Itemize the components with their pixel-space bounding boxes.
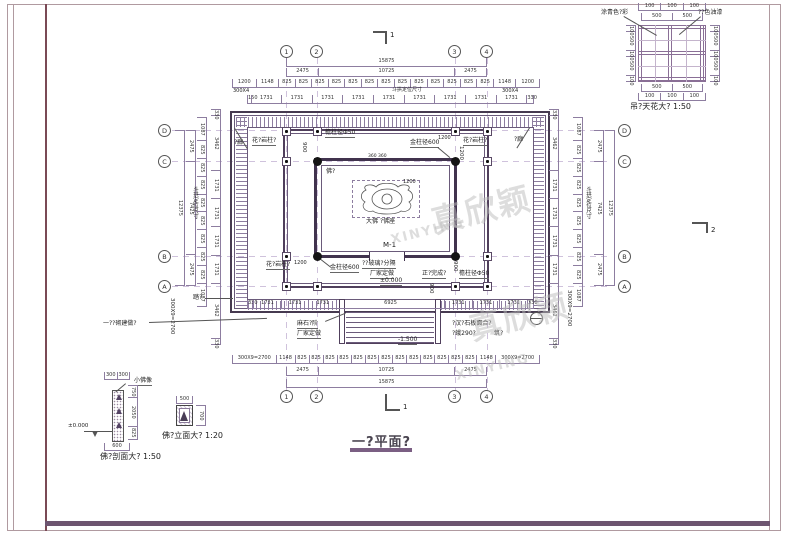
dimension-value: 100 (710, 76, 719, 82)
ceiling-grid-midline (638, 66, 706, 67)
eave-column (282, 157, 291, 166)
dimension-value: 3462 (549, 116, 558, 171)
dimension-value: 825 (573, 230, 582, 248)
granite-column-label-bl: 花?岩柱? (266, 262, 290, 270)
dimension-value: 1731 (549, 171, 558, 199)
dimension-value: 825 (197, 248, 206, 266)
dimension-value: 1731 (549, 256, 558, 284)
grid-bubble-C-left: C (158, 155, 171, 168)
dimension-value: 10725 (318, 367, 454, 375)
ceiling-detail-caption: 吊?天花大? 1:50 (630, 103, 691, 112)
bracket-note-right: 斗拱定位尺寸 (584, 186, 592, 219)
eave-column (282, 252, 291, 261)
eave-column (282, 282, 291, 291)
granite-column-label-tr: 花?岩柱? (463, 138, 487, 146)
border-bottom-thick (45, 521, 770, 526)
section-dim-bottom: 600 (104, 443, 130, 451)
ceiling-grid-band (638, 25, 706, 29)
dimension-value: 300 (117, 372, 130, 379)
buddha-statue-outline (356, 183, 418, 215)
dim-chain-top-major: 2475107252475 (286, 68, 487, 77)
dimension-value: 1200 (232, 79, 256, 87)
dimension-value: 1731 (281, 300, 309, 308)
dimension-value: 2475 (286, 68, 318, 76)
dimension-value: 1731 (549, 227, 558, 255)
dimension-value: 330 (211, 339, 220, 345)
grid-bubble-4-top: 4 (480, 45, 493, 58)
dimension-value: 500 (641, 84, 672, 91)
eave-note-right: 300X4 (502, 89, 518, 95)
grid-bubble-C-right: C (618, 155, 631, 168)
dimension-value: 100 (660, 3, 682, 10)
dimension-value: 15875 (286, 58, 486, 66)
dim-chain-top-total: 15875 (286, 58, 487, 67)
dimension-value: 825 (462, 355, 476, 363)
dimension-value: 1731 (211, 199, 220, 227)
dimension-value: 15875 (286, 379, 486, 387)
dimension-value: 825 (323, 355, 337, 363)
title-underline (350, 448, 412, 452)
section-mark-bottom-line (385, 409, 400, 411)
dimension-value: 825 (197, 159, 206, 177)
level-zero-label: ±0.000 (380, 278, 402, 286)
leader-line (205, 298, 233, 299)
eave-column (483, 157, 492, 166)
dim-900: 900 (428, 283, 434, 294)
section-mark-bottom-number: 1 (403, 404, 407, 412)
dimension-value: 825 (128, 427, 137, 440)
dimension-value: 2475 (186, 131, 195, 162)
buddha-silhouette-icon (180, 411, 188, 421)
dimension-value: 100 (638, 93, 660, 100)
grid-bubble-3-bottom: 3 (448, 390, 461, 403)
statue-label: 大佛 ?佛座 (366, 219, 395, 226)
dimension-value: 500 (176, 396, 192, 403)
dimension-value: 825 (311, 79, 328, 87)
dimension-value: 825 (573, 141, 582, 159)
dimension-value: 1148 (276, 355, 295, 363)
section-level-line (84, 431, 112, 432)
eave-column-label-bottom: 檐柱径Φ50 (459, 271, 489, 279)
door-opening (369, 253, 405, 260)
ceiling-paint-label-right: ??色油漆 (698, 10, 722, 17)
level-mark-icon (92, 431, 98, 437)
dimension-value: 825 (309, 355, 323, 363)
eave-column (483, 252, 492, 261)
dimension-value: 825 (394, 79, 411, 87)
dimension-value: 100 (638, 3, 660, 10)
dimension-value: 1148 (256, 79, 279, 87)
dimension-value: 825 (197, 266, 206, 284)
dim-chain-left-total: 12375 (175, 130, 185, 286)
ceiling-grid-band (638, 77, 706, 81)
dimension-value: 750 (128, 386, 137, 398)
grid-bubble-3-top: 3 (448, 45, 461, 58)
dimension-value: 1731 (465, 95, 496, 103)
elevation-dim-right: 700 (196, 405, 206, 426)
gold-column-label-bottom: 金柱径600 (330, 265, 359, 273)
dim-1200: 1200 (458, 146, 464, 160)
dim-900: 900 (301, 142, 307, 153)
dimension-value: 1731 (373, 95, 404, 103)
dim-chain-right-major: 247574252475 (594, 130, 604, 286)
dimension-value: 2475 (286, 367, 318, 375)
dimension-value: 825 (476, 79, 493, 87)
dimension-value: 825 (377, 79, 394, 87)
dim-chain-left-bay: 330346217311731173117313462330 (211, 109, 221, 345)
dim-chain-right-total: 12375 (605, 130, 615, 286)
bracket-note-left: 斗拱定位尺寸 (191, 186, 199, 219)
ceiling-dim-left: 100500100500100 (626, 25, 636, 82)
border-right-inner (769, 4, 770, 531)
eave-column (483, 282, 492, 291)
small-buddha-icon (116, 394, 122, 400)
dim-1200: 1200 (438, 136, 451, 142)
dimension-value: 825 (443, 79, 460, 87)
section-mark-bottom-line (385, 394, 387, 410)
dimension-value: 825 (460, 79, 477, 87)
ceiling-dim-top-outer: 100100100 (638, 3, 706, 11)
side-note-left: 300X9=2700 (169, 298, 175, 334)
dimension-value: 12375 (605, 131, 614, 286)
dimension-value: 825 (573, 177, 582, 195)
dimension-value: 100 (660, 93, 682, 100)
ceiling-grid-midline (638, 40, 706, 41)
grid-bubble-D-left: D (158, 124, 171, 137)
section-detail-caption: 佛?剖面大? 1:50 (100, 453, 161, 462)
section-level-label: ±0.000 (68, 423, 88, 429)
dimension-value: 1731 (342, 95, 373, 103)
dimension-value: 825 (344, 79, 361, 87)
grid-bubble-A-left: A (158, 280, 171, 293)
ceiling-grid-band (638, 51, 706, 55)
dimension-value: 600 (104, 443, 129, 450)
dimension-value: 500 (710, 32, 719, 51)
granite-column-label-tl: 花?岩柱? (252, 138, 276, 146)
dimension-value: 825 (573, 195, 582, 213)
glass-partition-label: ??玻璃?分隔 (362, 261, 396, 269)
dimension-value: 1731 (211, 171, 220, 199)
gold-column (451, 252, 460, 261)
dimension-value: 825 (361, 79, 378, 87)
bracket-note-top: 斗拱定位尺寸 (392, 88, 422, 94)
dimension-value: 1731 (253, 300, 281, 308)
eave-column (483, 127, 492, 136)
dimension-value: 500 (626, 57, 635, 76)
rafter-hatch-top (236, 117, 544, 127)
eave-note-left: 300X4 (233, 89, 249, 95)
eave-column (313, 282, 322, 291)
dimension-value: 1731 (308, 300, 336, 308)
dimension-value: 300X9=2700 (232, 355, 276, 363)
dim-chain-top-small: 1200114882582582582582582582582582582582… (232, 79, 540, 88)
dimension-value: 825 (378, 355, 392, 363)
stair-steps (346, 312, 434, 344)
dimension-value: 100 (626, 76, 635, 82)
dimension-value: 300 (104, 372, 117, 379)
dimension-value: 1087 (573, 118, 582, 141)
dimension-value: 500 (626, 32, 635, 51)
dimension-value: 3462 (211, 116, 220, 171)
dimension-value: 1731 (549, 199, 558, 227)
dim-900: 900 (452, 261, 458, 272)
elevation-detail-caption: 佛?立面大? 1:20 (162, 432, 223, 441)
dimension-value: 6925 (336, 300, 444, 308)
dimension-value: 330 (526, 95, 533, 103)
dimension-value: 1731 (211, 256, 220, 284)
eave-column-label-top: 檐柱径Φ50 (325, 130, 355, 138)
eave-column (451, 282, 460, 291)
ceiling-dim-bottom-outer: 100100100 (638, 93, 706, 101)
dimension-value: 12375 (175, 131, 184, 286)
dimension-value: 1731 (312, 95, 343, 103)
dimension-value: 825 (351, 355, 365, 363)
section-dim-top: 300300 (104, 372, 130, 380)
dimension-value: 1731 (251, 95, 282, 103)
grid-bubble-B-left: B (158, 250, 171, 263)
dim-chain-right-small: 10878258258258258258258258251087 (573, 117, 583, 307)
ceiling-dim-right: 100500100500100 (710, 25, 720, 82)
dimension-value: 825 (434, 355, 448, 363)
door-jamb-right (404, 252, 405, 261)
grid-bubble-1-top: 1 (280, 45, 293, 58)
dimension-value: 700 (196, 406, 205, 426)
drawing-sheet: 15875 2475107252475 12001148825825825825… (0, 0, 790, 536)
dimension-value: 825 (295, 79, 312, 87)
dimension-value: 2475 (594, 255, 603, 286)
grid-bubble-A-right: A (618, 280, 631, 293)
dimension-value: 2050 (128, 398, 137, 428)
section-mark-right-number: 2 (711, 227, 715, 235)
level-negative-label: -1.500 (398, 337, 417, 345)
eave-column (282, 127, 291, 136)
dimension-value: 825 (328, 79, 345, 87)
small-buddha-icon (116, 408, 122, 414)
grid-bubble-B-right: B (618, 250, 631, 263)
border-left-thick (45, 4, 47, 531)
dimension-value: 3462 (211, 284, 220, 339)
small-buddha-icon (116, 422, 122, 428)
dimension-value: 825 (406, 355, 420, 363)
gold-column (313, 157, 322, 166)
dim-360: 360 360 (368, 155, 387, 160)
dimension-value: 500 (710, 57, 719, 76)
grid-bubble-1-bottom: 1 (280, 390, 293, 403)
stone-steps-label: 麻石?阶 (297, 321, 318, 329)
dimension-value: 825 (197, 230, 206, 248)
dimension-value: 825 (420, 355, 434, 363)
dimension-value: 1200 (515, 79, 539, 87)
dimension-value: 1731 (211, 227, 220, 255)
dimension-value: 825 (365, 355, 379, 363)
dimension-value: 825 (392, 355, 406, 363)
grid-bubble-4-bottom: 4 (480, 390, 493, 403)
dimension-value: 500 (641, 13, 672, 20)
section-mark-top-number: 1 (390, 32, 394, 40)
dimension-value: 825 (337, 355, 351, 363)
dimension-value: 825 (410, 79, 427, 87)
grid-bubble-2-bottom: 2 (310, 390, 323, 403)
ceiling-dim-bottom-inner: 500500 (641, 84, 703, 92)
dimension-value: 2475 (454, 68, 486, 76)
niche-label: 佛? (326, 169, 335, 176)
dimension-value: 825 (278, 79, 295, 87)
dimension-value: 825 (573, 266, 582, 284)
elevation-dim-top: 500 (176, 396, 193, 404)
section-mark-right-line (706, 222, 708, 233)
dim-chain-top-bay: 1501731173117311731173117311731173117313… (247, 95, 534, 104)
dimension-value: 825 (573, 212, 582, 230)
dimension-value: 825 (295, 355, 309, 363)
dimension-value: 825 (448, 355, 462, 363)
step-label: 踏? (193, 295, 202, 302)
dimension-value: 1087 (197, 118, 206, 141)
custom-made-label-2: 厂家定做 (297, 331, 321, 339)
dim-1200-statue: 1200 (403, 180, 416, 186)
dimension-value: 330 (549, 339, 558, 345)
eave-column (313, 127, 322, 136)
dimension-value: 825 (573, 248, 582, 266)
ceiling-grid-midline (686, 25, 687, 82)
border-left-inner (13, 4, 14, 531)
dimension-value: 825 (427, 79, 444, 87)
dimension-value: 825 (573, 159, 582, 177)
dimension-value: 1731 (434, 95, 465, 103)
dimension-value: 1087 (573, 284, 582, 307)
dimension-value: 825 (197, 141, 206, 159)
dim-1200: 1200 (294, 261, 307, 267)
section-mark-top-line (385, 31, 387, 44)
section-dim-right: 7502050825 (128, 385, 138, 440)
eave-column (451, 127, 460, 136)
masonry-note-label: 一??砌建做? (103, 321, 137, 328)
dimension-value: 1148 (493, 79, 516, 87)
dimension-value: 500 (672, 84, 703, 91)
dimension-value: 100 (683, 93, 705, 100)
grid-bubble-D-right: D (618, 124, 631, 137)
dimension-value: 7425 (594, 162, 603, 254)
grid-bubble-2-top: 2 (310, 45, 323, 58)
dimension-value: 1731 (496, 95, 527, 103)
ceiling-dim-top-inner: 500500 (641, 13, 703, 21)
dimension-value: 10725 (318, 68, 454, 76)
dimension-value: 2475 (186, 255, 195, 286)
dimension-value: 1731 (404, 95, 435, 103)
gold-column-label-top: 金柱径600 (410, 140, 439, 148)
dimension-value: 1731 (281, 95, 312, 103)
dimension-value: 2475 (594, 131, 603, 162)
front-finish-label: 正?完成? (422, 271, 446, 279)
